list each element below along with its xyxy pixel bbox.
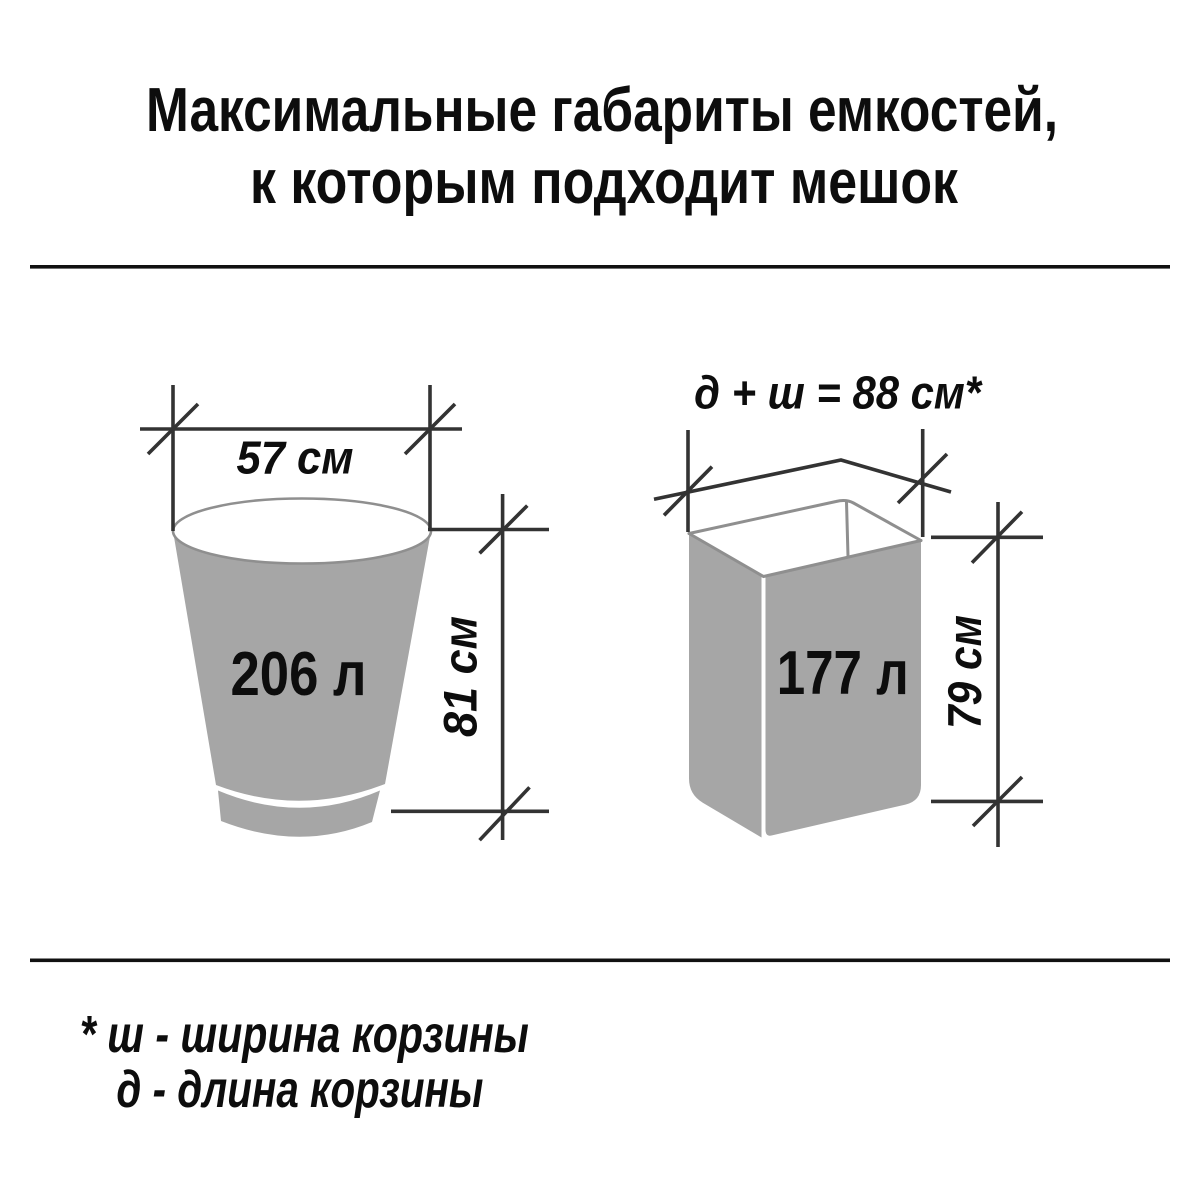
svg-text:к которым подходит мешок: к которым подходит мешок xyxy=(250,148,959,217)
svg-text:79 см: 79 см xyxy=(938,615,991,729)
svg-text:д + ш = 88 см*: д + ш = 88 см* xyxy=(694,367,983,419)
svg-text:Максимальные габариты емкостей: Максимальные габариты емкостей, xyxy=(146,76,1058,145)
svg-text:д - длина корзины: д - длина корзины xyxy=(116,1061,483,1119)
svg-text:81 см: 81 см xyxy=(434,616,487,737)
svg-text:177 л: 177 л xyxy=(777,639,909,708)
svg-text:206 л: 206 л xyxy=(231,640,367,709)
svg-text:* ш - ширина корзины: * ш - ширина корзины xyxy=(80,1006,529,1064)
svg-text:57 см: 57 см xyxy=(237,432,354,484)
